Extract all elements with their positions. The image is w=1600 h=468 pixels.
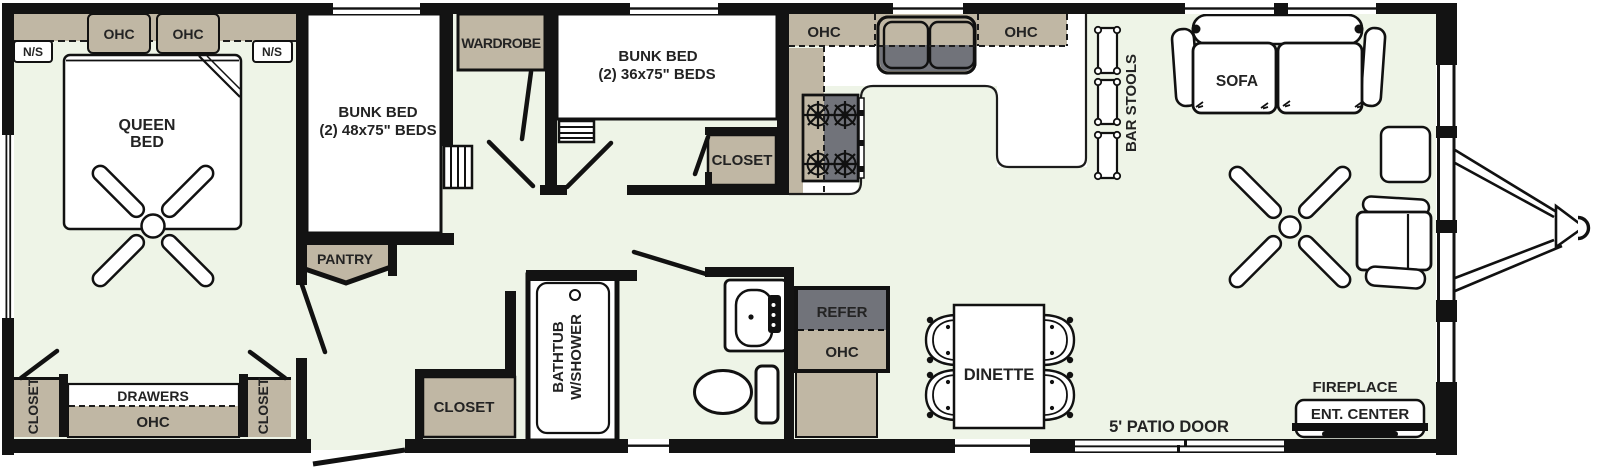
svg-text:SOFA: SOFA [1216,73,1258,90]
svg-text:OHC: OHC [825,344,859,361]
svg-text:CLOSET: CLOSET [255,377,271,434]
svg-text:W/SHOWER: W/SHOWER [568,314,585,400]
svg-text:(2) 48x75" BEDS: (2) 48x75" BEDS [319,122,436,139]
svg-text:CLOSET: CLOSET [25,377,41,434]
svg-text:BED: BED [130,134,164,151]
svg-text:OHC: OHC [172,26,203,42]
svg-text:PANTRY: PANTRY [317,251,374,267]
svg-text:(2) 36x75" BEDS: (2) 36x75" BEDS [598,66,715,83]
svg-text:OHC: OHC [103,26,134,42]
svg-text:BUNK BED: BUNK BED [618,48,697,65]
svg-text:N/S: N/S [23,45,43,59]
svg-text:DRAWERS: DRAWERS [117,388,189,404]
svg-text:ENT. CENTER: ENT. CENTER [1311,406,1410,423]
svg-text:OHC: OHC [136,414,170,431]
svg-text:FIREPLACE: FIREPLACE [1312,379,1397,396]
svg-text:DINETTE: DINETTE [964,366,1035,384]
svg-text:WARDROBE: WARDROBE [461,35,540,51]
svg-text:BUNK BED: BUNK BED [338,104,417,121]
svg-text:5' PATIO DOOR: 5' PATIO DOOR [1109,418,1229,436]
svg-text:OHC: OHC [807,24,841,41]
svg-text:BAR STOOLS: BAR STOOLS [1123,54,1140,152]
svg-text:CLOSET: CLOSET [434,399,495,416]
svg-text:QUEEN: QUEEN [119,117,176,134]
svg-text:REFER: REFER [817,304,868,321]
svg-text:OHC: OHC [1004,24,1038,41]
svg-text:BATHTUB: BATHTUB [550,321,567,393]
svg-text:N/S: N/S [262,45,282,59]
svg-text:CLOSET: CLOSET [712,152,773,169]
